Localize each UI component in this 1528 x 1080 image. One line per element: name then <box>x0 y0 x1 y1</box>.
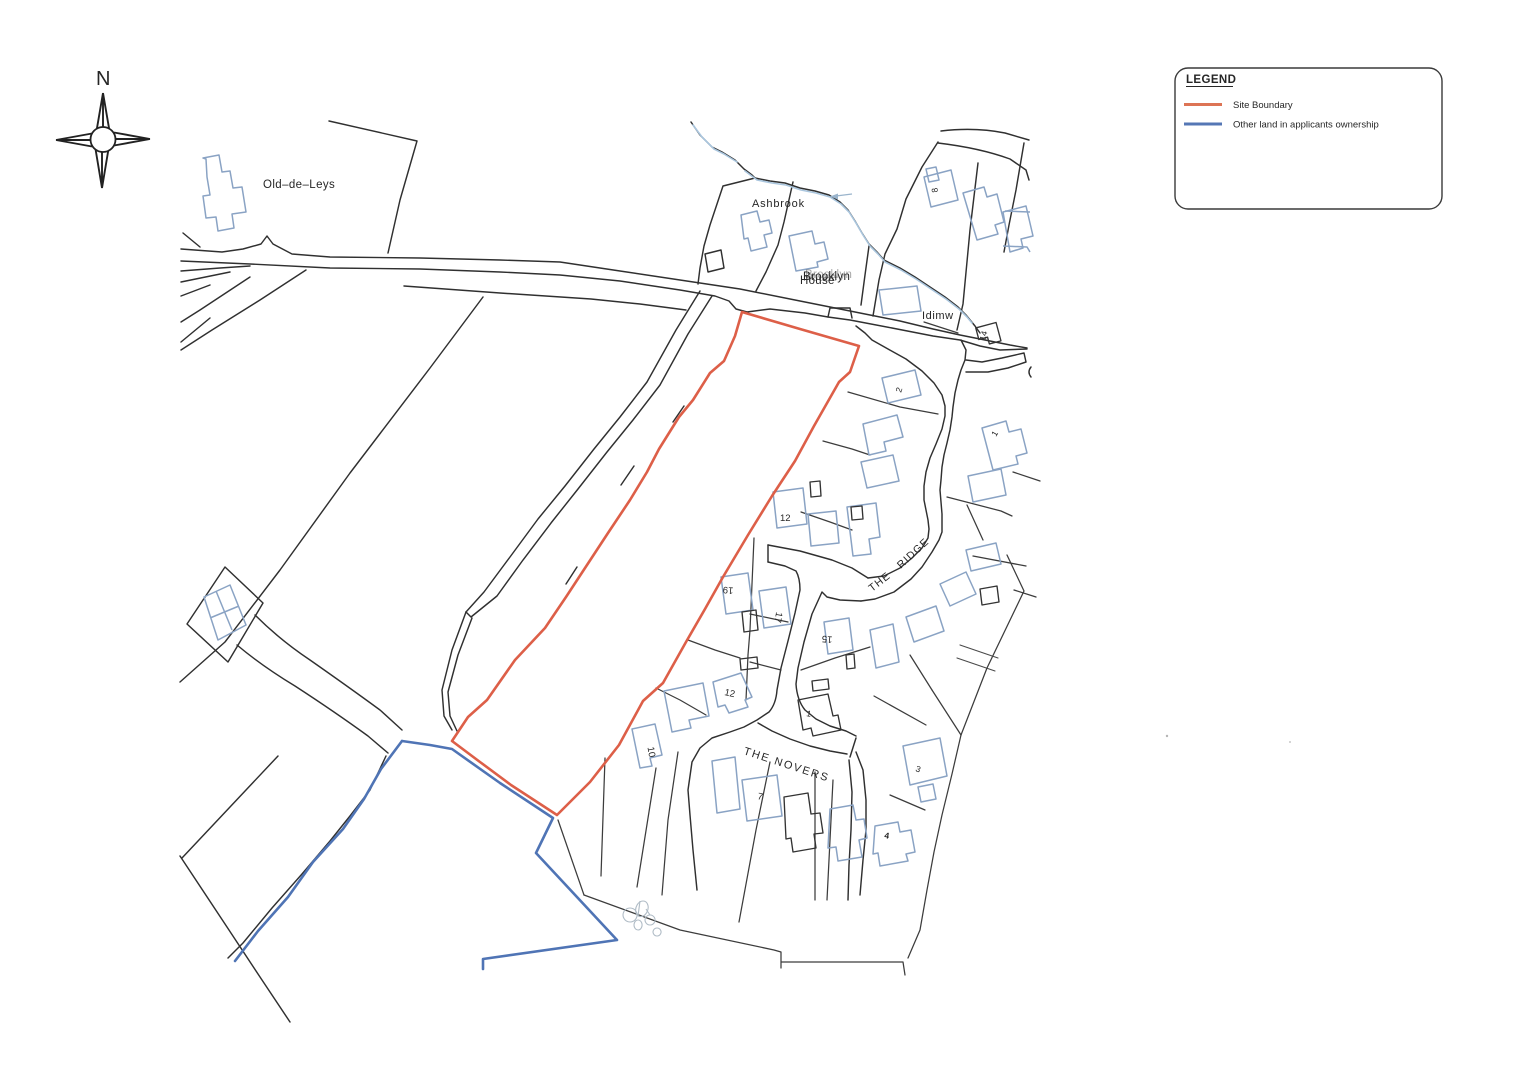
svg-text:17: 17 <box>771 611 784 623</box>
svg-text:Idimw: Idimw <box>922 310 954 322</box>
svg-text:Old–de–Leys: Old–de–Leys <box>263 179 335 191</box>
svg-text:Ashbrook: Ashbrook <box>752 198 805 210</box>
svg-text:Site Boundary: Site Boundary <box>1233 100 1293 111</box>
svg-text:12: 12 <box>780 513 791 524</box>
svg-text:Other land in applicants owner: Other land in applicants ownership <box>1233 120 1379 131</box>
svg-text:10: 10 <box>645 746 658 758</box>
svg-text:15: 15 <box>821 633 832 645</box>
svg-text:LEGEND: LEGEND <box>1186 74 1236 86</box>
svg-text:N: N <box>96 68 110 90</box>
svg-text:House: House <box>800 275 835 287</box>
svg-text:12: 12 <box>723 687 736 700</box>
svg-text:19: 19 <box>722 584 733 596</box>
